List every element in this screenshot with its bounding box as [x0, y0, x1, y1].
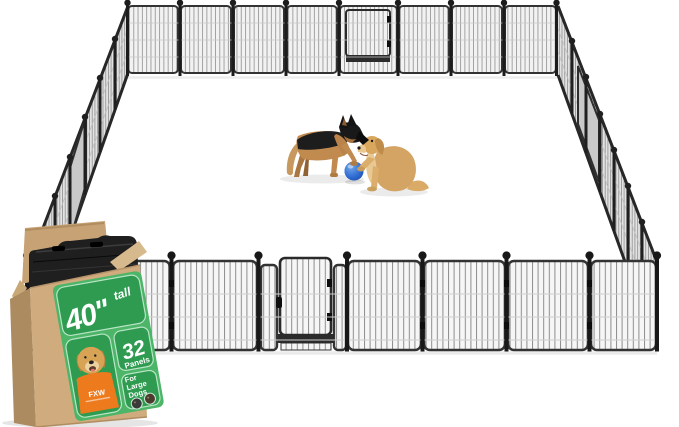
back-gate-hinge — [387, 16, 391, 23]
product-box: 40" tall 32 Panels For Large Dogs — [2, 221, 165, 427]
back-gate-door — [346, 10, 390, 56]
back-gate-hinge — [387, 40, 391, 47]
product-image: 40" tall 32 Panels For Large Dogs — [0, 0, 679, 427]
back-fence — [126, 1, 558, 77]
front-gate-latch — [276, 297, 282, 308]
front-gate-door — [280, 258, 331, 335]
front-gate-hinge — [327, 279, 332, 287]
back-gate — [340, 6, 397, 73]
front-gate — [261, 258, 346, 350]
dogs — [280, 114, 429, 197]
product-photo-canvas: 40" tall 32 Panels For Large Dogs — [0, 0, 679, 427]
retriever-paw — [357, 167, 365, 172]
